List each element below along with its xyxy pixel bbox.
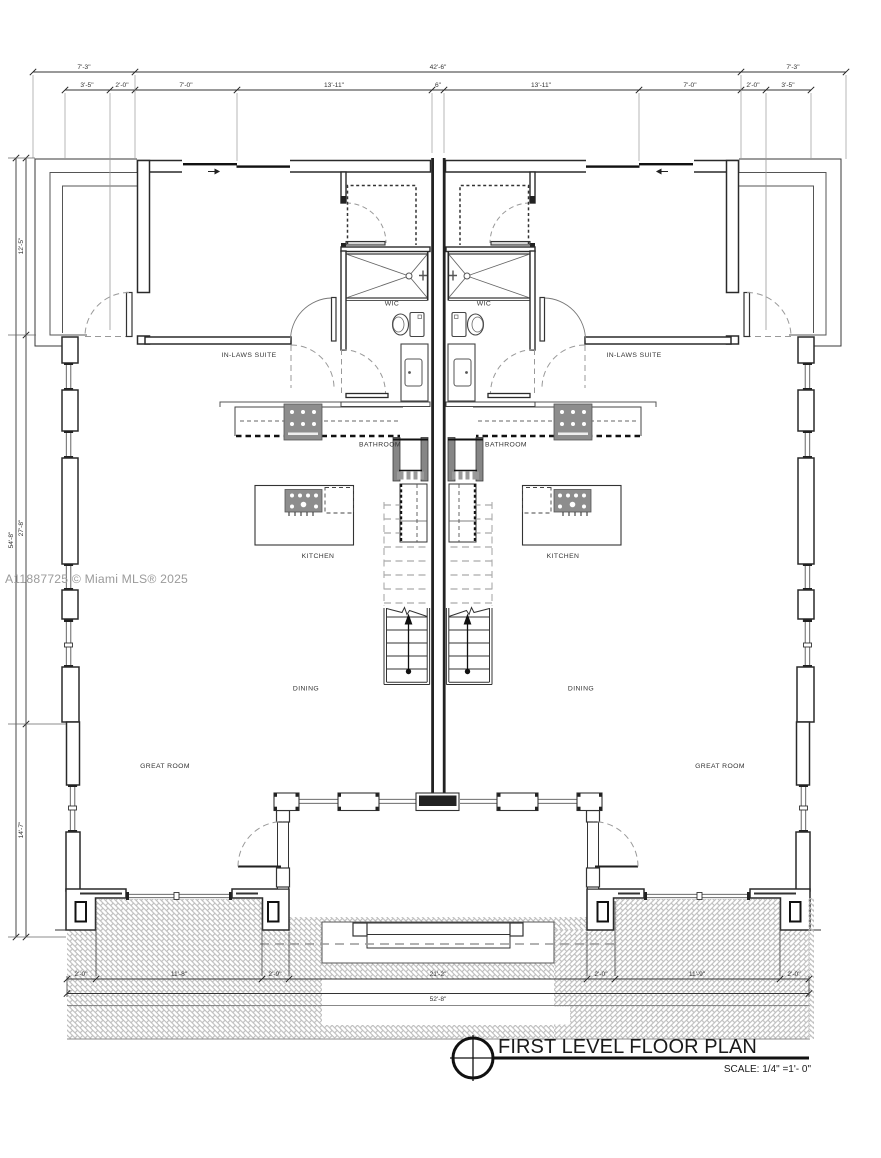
svg-text:52'-8": 52'-8": [430, 996, 447, 1003]
svg-text:7'-3": 7'-3": [77, 64, 91, 71]
svg-text:6": 6": [435, 82, 442, 89]
svg-text:42'-6": 42'-6": [430, 64, 447, 71]
svg-text:DINING: DINING: [568, 686, 594, 693]
svg-text:GREAT ROOM: GREAT ROOM: [695, 763, 745, 770]
svg-text:54'-8": 54'-8": [8, 531, 15, 548]
svg-text:WIC: WIC: [385, 301, 399, 308]
svg-text:2'-0": 2'-0": [594, 971, 608, 978]
svg-text:2'-0": 2'-0": [74, 971, 88, 978]
svg-text:12'-5": 12'-5": [18, 237, 25, 254]
svg-text:3'-5": 3'-5": [781, 82, 795, 89]
svg-text:2'-0": 2'-0": [787, 971, 801, 978]
svg-text:13'-11": 13'-11": [531, 82, 552, 89]
svg-text:21'-2": 21'-2": [430, 971, 447, 978]
svg-text:2'-0": 2'-0": [115, 82, 129, 89]
svg-text:KITCHEN: KITCHEN: [302, 553, 335, 560]
svg-text:KITCHEN: KITCHEN: [547, 553, 580, 560]
svg-text:3'-5": 3'-5": [80, 82, 94, 89]
svg-text:27'-8": 27'-8": [18, 519, 25, 536]
svg-text:7'-0": 7'-0": [179, 82, 193, 89]
svg-text:WIC: WIC: [477, 301, 491, 308]
svg-text:FIRST LEVEL FLOOR PLAN: FIRST LEVEL FLOOR PLAN: [498, 1036, 757, 1058]
svg-text:IN-LAWS SUITE: IN-LAWS SUITE: [606, 352, 661, 359]
svg-text:SCALE: 1/4" =1'- 0": SCALE: 1/4" =1'- 0": [724, 1064, 812, 1075]
svg-text:11'-9": 11'-9": [689, 971, 706, 978]
svg-text:A11887725 © Miami MLS® 2025: A11887725 © Miami MLS® 2025: [5, 572, 188, 586]
svg-text:DINING: DINING: [293, 686, 319, 693]
svg-text:2'-0": 2'-0": [746, 82, 760, 89]
svg-text:7'-0": 7'-0": [683, 82, 697, 89]
svg-text:7'-3": 7'-3": [786, 64, 800, 71]
svg-text:13'-11": 13'-11": [324, 82, 345, 89]
svg-text:2'-9": 2'-9": [268, 971, 282, 978]
svg-text:14'-7": 14'-7": [18, 821, 25, 838]
svg-text:BATHROOM: BATHROOM: [359, 442, 401, 449]
svg-text:GREAT ROOM: GREAT ROOM: [140, 763, 190, 770]
svg-text:BATHROOM: BATHROOM: [485, 442, 527, 449]
svg-text:IN-LAWS SUITE: IN-LAWS SUITE: [221, 352, 276, 359]
svg-text:11'-8": 11'-8": [171, 971, 188, 978]
